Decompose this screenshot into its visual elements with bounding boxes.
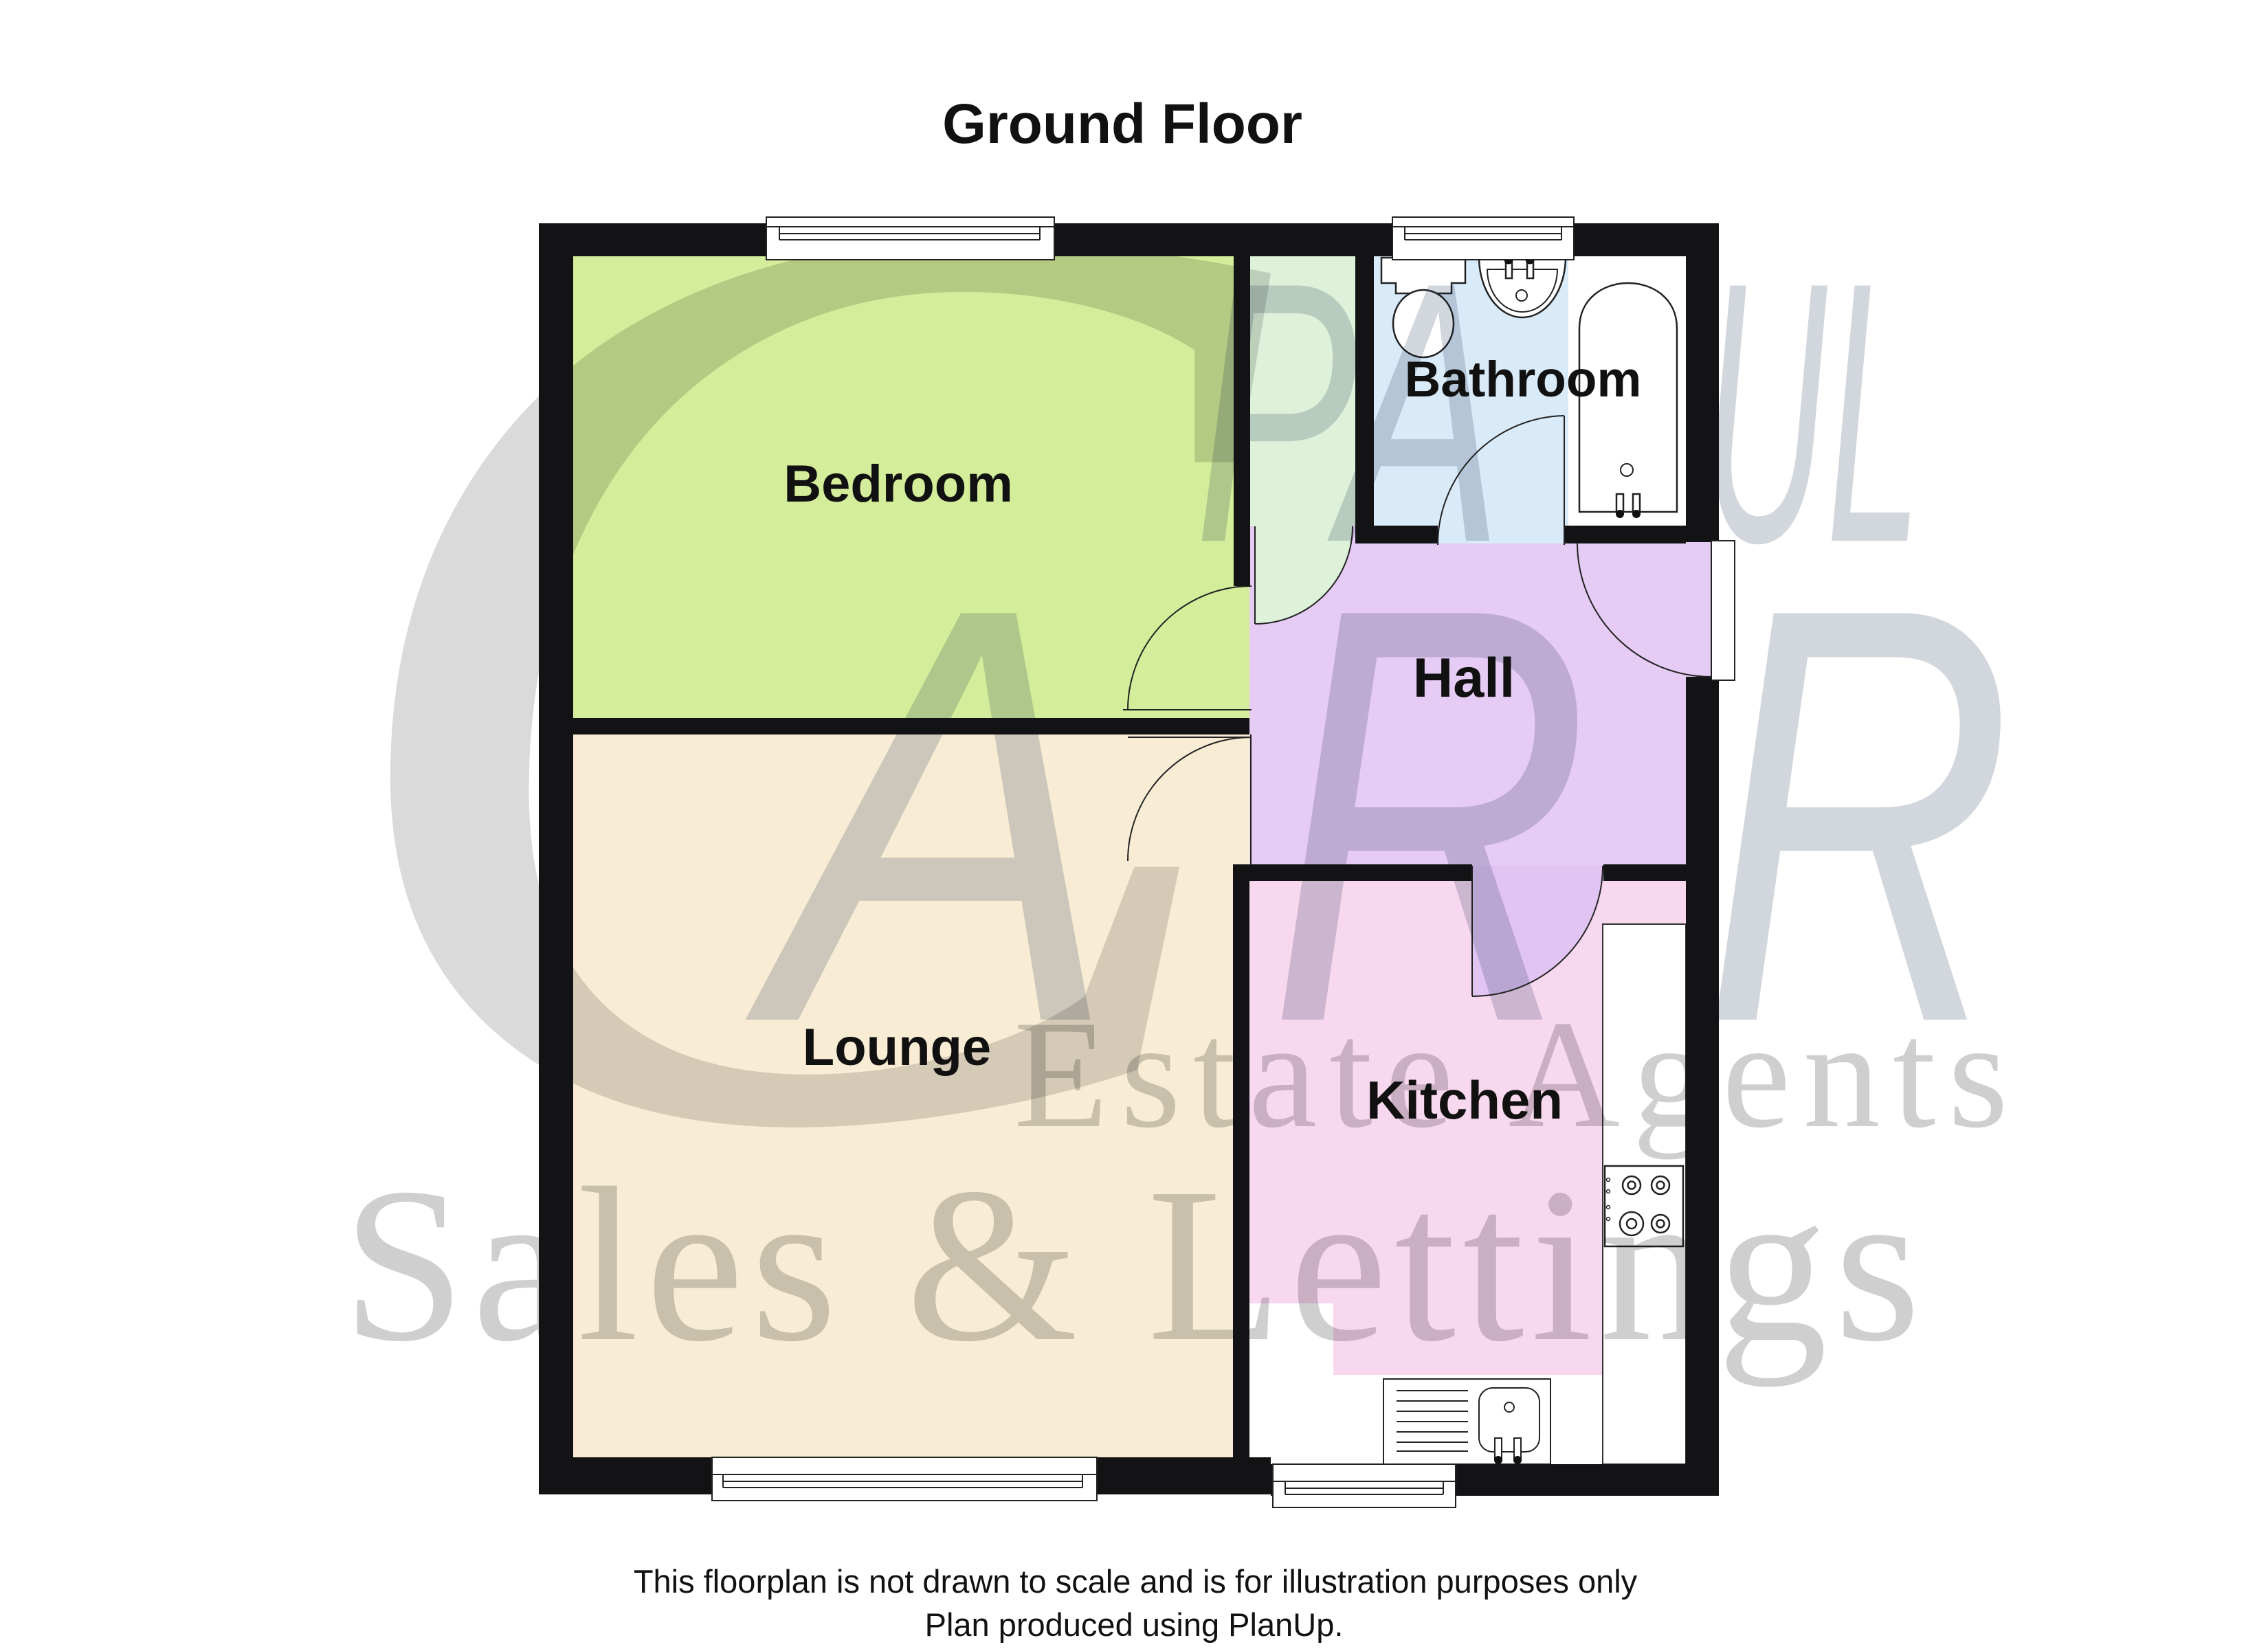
svg-text:Bathroom: Bathroom <box>1405 352 1642 407</box>
svg-text:Plan produced using PlanUp.: Plan produced using PlanUp. <box>925 1606 1344 1643</box>
svg-text:Ground Floor: Ground Floor <box>942 93 1302 155</box>
svg-text:Lounge: Lounge <box>803 1018 991 1077</box>
svg-text:Kitchen: Kitchen <box>1366 1070 1563 1130</box>
svg-text:Bedroom: Bedroom <box>783 455 1013 513</box>
svg-text:Hall: Hall <box>1413 647 1515 709</box>
svg-text:This floorplan is not drawn to: This floorplan is not drawn to scale and… <box>634 1563 1638 1600</box>
